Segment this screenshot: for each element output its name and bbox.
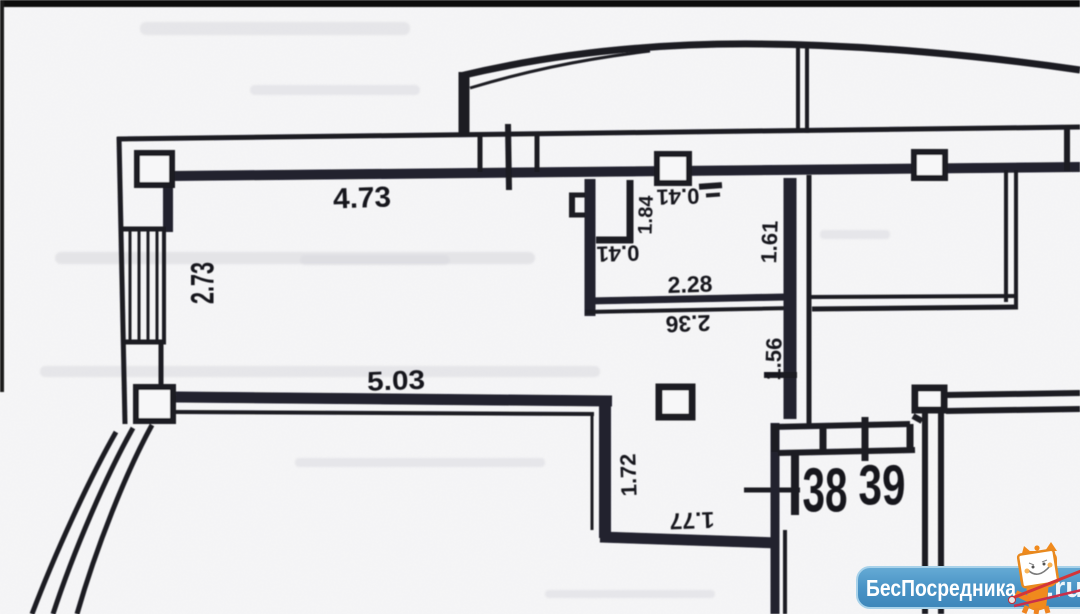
svg-text:38: 38 [803,456,848,525]
svg-text:0.41: 0.41 [596,240,640,266]
svg-text:1.61: 1.61 [756,220,782,264]
svg-text:39: 39 [859,454,906,518]
svg-text:2.28: 2.28 [667,270,713,298]
svg-text:2.73: 2.73 [185,262,221,304]
svg-text:5.03: 5.03 [367,365,426,397]
svg-text:1.84: 1.84 [635,194,658,235]
svg-text:БесПосредника: БесПосредника [866,575,1016,601]
svg-text:1.72: 1.72 [615,453,641,497]
svg-text:1.77: 1.77 [669,507,715,535]
svg-text:4.73: 4.73 [333,181,392,215]
svg-text:2.36: 2.36 [665,310,711,338]
svg-text:1.56: 1.56 [760,337,786,381]
svg-text:0.41: 0.41 [656,183,700,209]
